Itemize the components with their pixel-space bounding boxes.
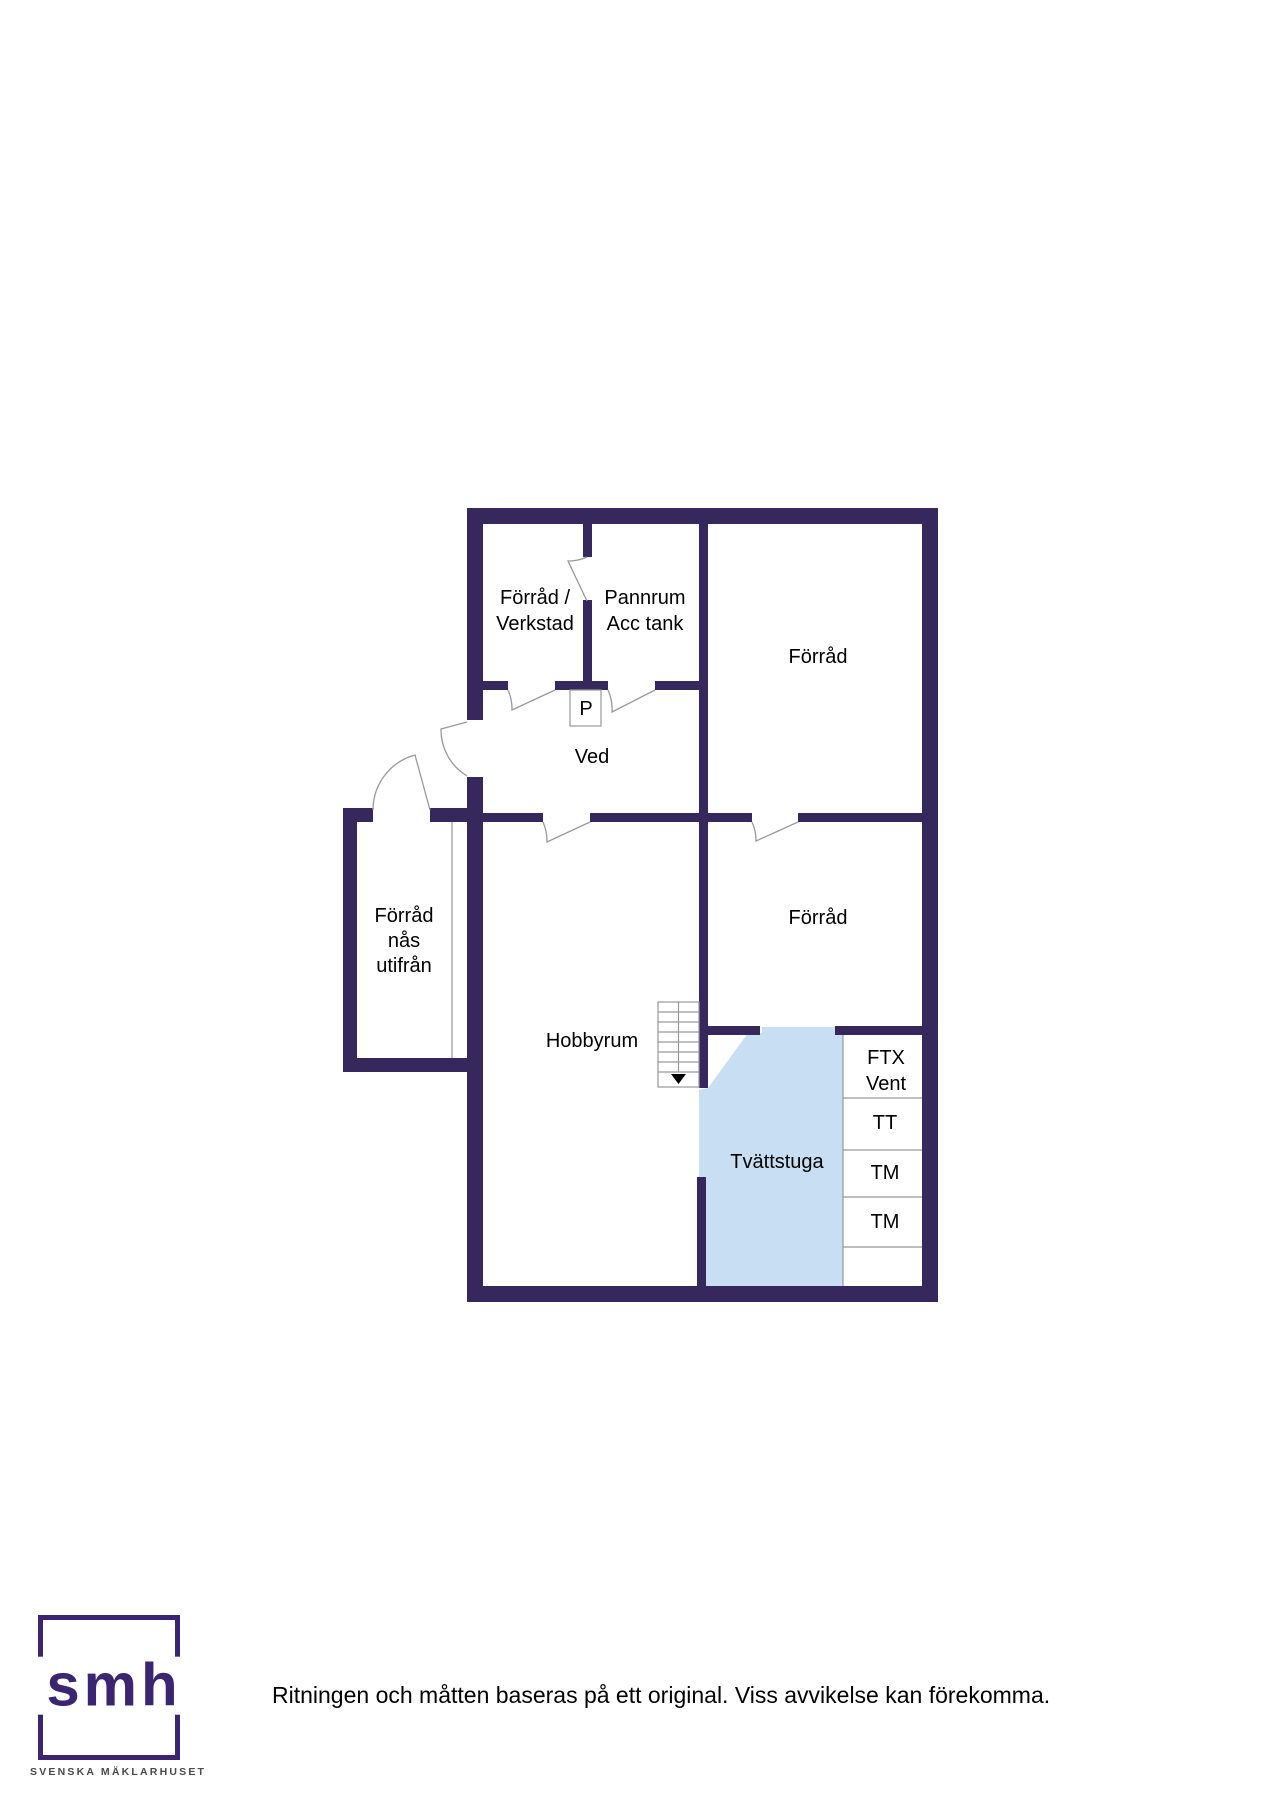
label-forrad-verkstad-line2: Verkstad (496, 613, 574, 635)
storage-wall-bottom (343, 1058, 483, 1072)
wall-laundry-top-right (835, 1026, 922, 1035)
door-verkstad-pannrum (568, 557, 587, 601)
wall-central-vertical (699, 524, 708, 1088)
wall-middle-horizontal-b (590, 813, 752, 822)
label-ftx-line2: Vent (866, 1073, 906, 1095)
smh-logo-subtext: SVENSKA MÄKLARHUSET (30, 1766, 190, 1778)
wall-laundry-top-left (703, 1026, 760, 1035)
label-forrad-utifran-line2: nås (388, 930, 420, 952)
outer-wall-left-upper (467, 508, 483, 720)
outer-wall-left-lower (467, 777, 483, 1302)
wall-verkstad-pannrum-lower (583, 600, 592, 681)
label-forrad-verkstad-line1: Förråd / (500, 587, 570, 609)
label-pannrum-line2: Acc tank (607, 613, 685, 635)
floorplan-drawing: Förråd / Verkstad Pannrum Acc tank Förrå… (0, 0, 1280, 1811)
outer-wall-top (467, 508, 938, 524)
disclaimer-text: Ritningen och måtten baseras på ett orig… (272, 1682, 1050, 1709)
label-forrad-top: Förråd (789, 646, 848, 668)
label-tvattstuga: Tvättstuga (730, 1151, 824, 1173)
storage-wall-left (343, 808, 357, 1072)
door-pannrum-ved (608, 690, 655, 712)
outer-wall-bottom (467, 1286, 938, 1302)
stairs (658, 1002, 699, 1087)
label-hobbyrum: Hobbyrum (546, 1030, 638, 1052)
storage-wall-top-right (430, 808, 467, 822)
wall-toprooms-bottom-a (483, 681, 508, 690)
door-verkstad-ved (508, 690, 555, 710)
label-forrad-utifran-line3: utifrån (376, 955, 432, 977)
door-ved-hobbyrum (543, 822, 590, 842)
label-ved: Ved (575, 746, 609, 768)
wall-verkstad-pannrum-upper (583, 524, 592, 557)
door-forrad-forrad (752, 822, 798, 841)
outer-wall-right (922, 508, 938, 1302)
wall-toprooms-bottom-b (555, 681, 608, 690)
door-exterior-storage (373, 755, 430, 810)
label-tm-lower: TM (871, 1211, 900, 1233)
label-tt: TT (873, 1112, 897, 1134)
label-ftx-line1: FTX (867, 1047, 905, 1069)
label-pannrum-line1: Pannrum (604, 587, 685, 609)
door-exterior-left (441, 722, 467, 776)
wall-middle-horizontal-a (483, 813, 543, 822)
label-tm-upper: TM (871, 1162, 900, 1184)
wall-middle-horizontal-c (798, 813, 922, 822)
label-forrad-utifran-line1: Förråd (375, 905, 434, 927)
wall-laundry-left-lower (697, 1177, 706, 1286)
label-forrad-mid: Förråd (789, 907, 848, 929)
smh-logo: smh (38, 1615, 180, 1760)
label-p: P (579, 698, 592, 720)
storage-wall-top-left (343, 808, 373, 822)
smh-logo-text: smh (33, 1656, 195, 1714)
